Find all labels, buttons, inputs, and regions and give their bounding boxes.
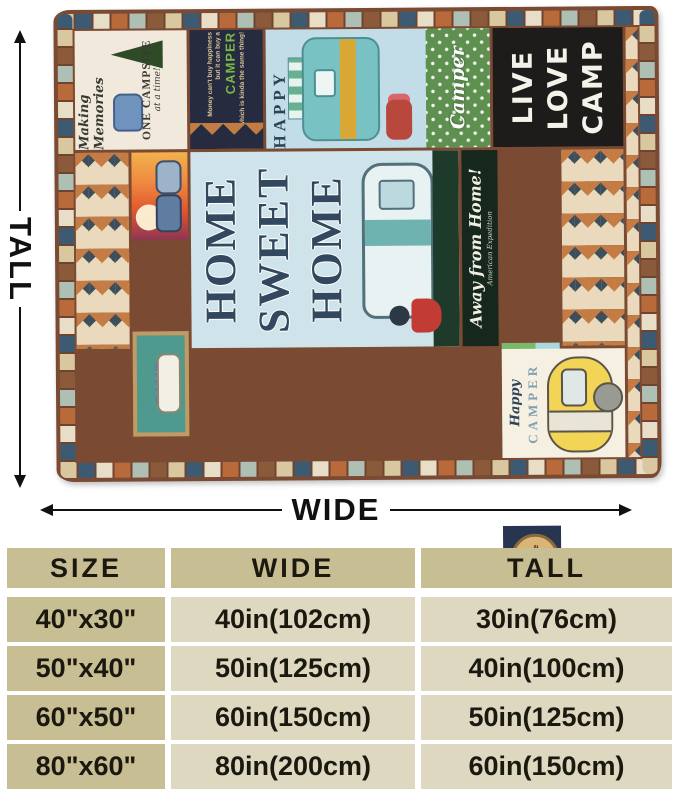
panel-happy-camper-floral: HAPPY Camper — [266, 28, 491, 149]
size-table: SIZE WIDE TALL 40"x30" 40in(102cm) 30in(… — [7, 548, 672, 789]
love-text: LOVE — [542, 44, 574, 130]
table-row-wide: 60in(150cm) — [171, 695, 415, 740]
panel-teepee-right — [561, 149, 624, 345]
home-sweet-home-text: HOME SWEET HOME — [190, 151, 352, 348]
sweet-word: SWEET — [247, 166, 299, 333]
panel-home-sweet-home: HOME SWEET HOME — [190, 150, 459, 348]
tall-label: TALL — [2, 217, 38, 302]
table-row-tall: 40in(100cm) — [421, 646, 672, 691]
panel-teepee-strip-right-edge — [625, 27, 640, 457]
camper-wheel — [593, 382, 623, 412]
camper-script-text: Camper — [447, 46, 470, 129]
live-text: LIVE — [507, 50, 539, 125]
money-line1: Money can't buy happiness — [207, 32, 215, 117]
making-memories-text: Making Memories — [77, 31, 108, 150]
camper-band — [549, 410, 611, 432]
happy-script-text: Happy — [508, 380, 523, 427]
camper-silhouette — [155, 160, 181, 194]
money-line3: which is kinda the same thing! — [239, 32, 247, 126]
panel-making-memories: Making Memories ONE CAMPSITE at a time! — [75, 30, 188, 150]
away-from-home-text: Away from Home! — [465, 169, 485, 328]
camp-text: CAMP — [577, 39, 609, 135]
camper-window — [314, 69, 336, 97]
trailer-wheel — [389, 306, 409, 326]
trailer-window — [379, 180, 415, 210]
camper-icon — [302, 37, 381, 142]
patchwork-border-bottom — [61, 459, 658, 478]
patchwork-border-top — [57, 10, 654, 29]
arrow-left-icon — [40, 504, 53, 516]
one-campsite-text: ONE CAMPSITE — [141, 40, 154, 141]
teal-camper-art — [294, 29, 427, 149]
at-a-time-text: at a time! — [153, 68, 163, 112]
wide-dimension-arrow: WIDE — [40, 494, 632, 526]
arrow-line — [19, 307, 21, 475]
wide-column-header: WIDE — [171, 548, 415, 588]
arrow-down-icon — [14, 475, 26, 488]
camper-word-text: CAMPER — [525, 363, 542, 444]
flower-box-icon — [386, 100, 412, 140]
arrow-line — [53, 509, 282, 511]
blanket-photo: Making Memories ONE CAMPSITE at a time! … — [53, 6, 661, 482]
trailer-art — [351, 150, 459, 347]
tall-column-header: TALL — [421, 548, 672, 588]
camper-icon — [113, 93, 143, 131]
panel-happy-camper-yellow: Happy CAMPER — [502, 348, 626, 458]
trees-pattern — [190, 123, 263, 150]
table-row-size: 50"x40" — [7, 646, 165, 691]
white-camper-icon — [157, 353, 181, 413]
arrow-line — [390, 509, 619, 511]
product-image: TALL Making Memories ONE CAMPSITE at a t… — [0, 0, 679, 789]
panel-away-from-home: Away from Home! American Expedition — [461, 150, 498, 346]
trailer-stripe — [365, 219, 431, 245]
money-line2: but it can buy a — [215, 32, 222, 80]
yellow-camper-art — [541, 348, 626, 458]
arrow-line — [19, 43, 21, 211]
table-row-wide: 50in(125cm) — [171, 646, 415, 691]
money-camper-word: CAMPER — [223, 32, 238, 94]
floral-meadow: Camper — [425, 28, 490, 147]
table-row-tall: 50in(125cm) — [421, 695, 672, 740]
panel-money-camper: Money can't buy happiness but it can buy… — [190, 30, 264, 150]
size-column-header: SIZE — [7, 548, 165, 588]
table-row-wide: 40in(102cm) — [171, 597, 415, 642]
table-row-wide: 80in(200cm) — [171, 744, 415, 789]
home-word-1: HOME — [195, 176, 247, 324]
red-chair-icon — [411, 298, 441, 332]
patchwork-border-right — [639, 10, 657, 474]
panel-teepee-left — [75, 153, 129, 349]
happy-camper-text: Happy CAMPER — [508, 363, 542, 444]
camper-window — [561, 368, 587, 406]
table-row-tall: 60in(150cm) — [421, 744, 672, 789]
quilt-panels: Making Memories ONE CAMPSITE at a time! … — [75, 27, 641, 461]
panel-camp-sign: CAMP — [133, 331, 190, 436]
table-row-size: 80"x60" — [7, 744, 165, 789]
table-row-size: 40"x30" — [7, 597, 165, 642]
arrow-right-icon — [619, 504, 632, 516]
car-silhouette — [156, 194, 182, 232]
table-row-tall: 30in(76cm) — [421, 597, 672, 642]
tree-icon — [111, 40, 163, 68]
tall-dimension-arrow: TALL — [2, 30, 38, 488]
tree-camper-art — [107, 31, 142, 150]
camper-door — [340, 39, 357, 139]
american-expedition-text: American Expedition — [486, 211, 495, 285]
trailer-icon — [361, 162, 434, 318]
patchwork-border-left — [57, 14, 75, 478]
table-row-size: 60"x50" — [7, 695, 165, 740]
arrow-up-icon — [14, 30, 26, 43]
panel-live-love-camp: LIVE LOVE CAMP — [492, 27, 623, 147]
wide-label: WIDE — [292, 492, 381, 528]
home-word-2: HOME — [301, 175, 353, 323]
panel-sunset-campers — [131, 152, 188, 240]
